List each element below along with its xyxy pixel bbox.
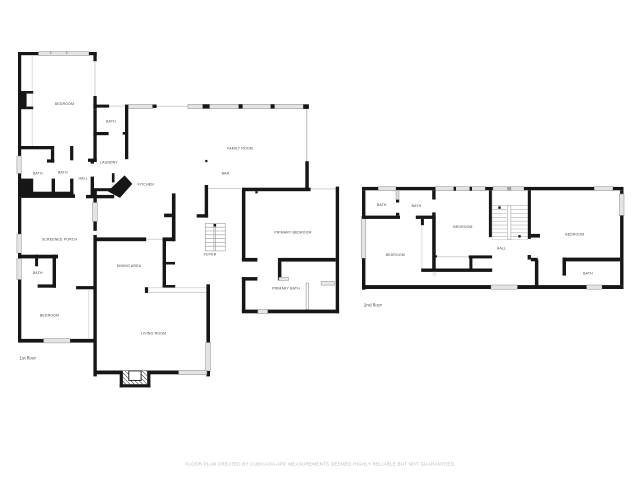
svg-text:LIVING ROOM: LIVING ROOM [141,332,166,336]
svg-text:HALL: HALL [78,176,87,180]
svg-text:BATH: BATH [583,272,593,276]
svg-text:FAMILY ROOM: FAMILY ROOM [227,147,253,151]
svg-text:1st floor: 1st floor [19,356,36,361]
svg-text:HALL: HALL [497,246,506,250]
svg-text:KITCHEN: KITCHEN [137,182,154,186]
svg-text:FOYER: FOYER [204,253,217,257]
svg-text:BATH: BATH [106,120,116,124]
svg-text:BEDROOM: BEDROOM [565,233,584,237]
svg-text:LAUNDRY: LAUNDRY [100,161,118,165]
svg-text:BATH: BATH [33,172,43,176]
svg-text:BEDROOM: BEDROOM [386,253,405,257]
svg-text:BATH: BATH [58,171,68,175]
svg-text:PRIMARY BATH: PRIMARY BATH [272,287,300,291]
svg-text:BATH: BATH [33,271,43,275]
svg-text:DINING AREA: DINING AREA [117,264,142,268]
svg-text:BEDROOM: BEDROOM [453,225,472,229]
svg-text:PRIMARY BEDROOM: PRIMARY BEDROOM [274,231,311,235]
svg-text:SCREENED PORCH: SCREENED PORCH [42,238,78,242]
svg-text:BATH: BATH [377,203,387,207]
svg-text:BEDROOM: BEDROOM [55,102,74,106]
svg-text:BEDROOM: BEDROOM [40,314,59,318]
svg-text:2nd floor: 2nd floor [364,302,383,307]
svg-text:BATH: BATH [412,204,422,208]
svg-text:BAR: BAR [222,172,230,176]
svg-text:FLOOR PLAN CREATED BY CUBICASA: FLOOR PLAN CREATED BY CUBICASA APP. MEAS… [185,462,455,467]
